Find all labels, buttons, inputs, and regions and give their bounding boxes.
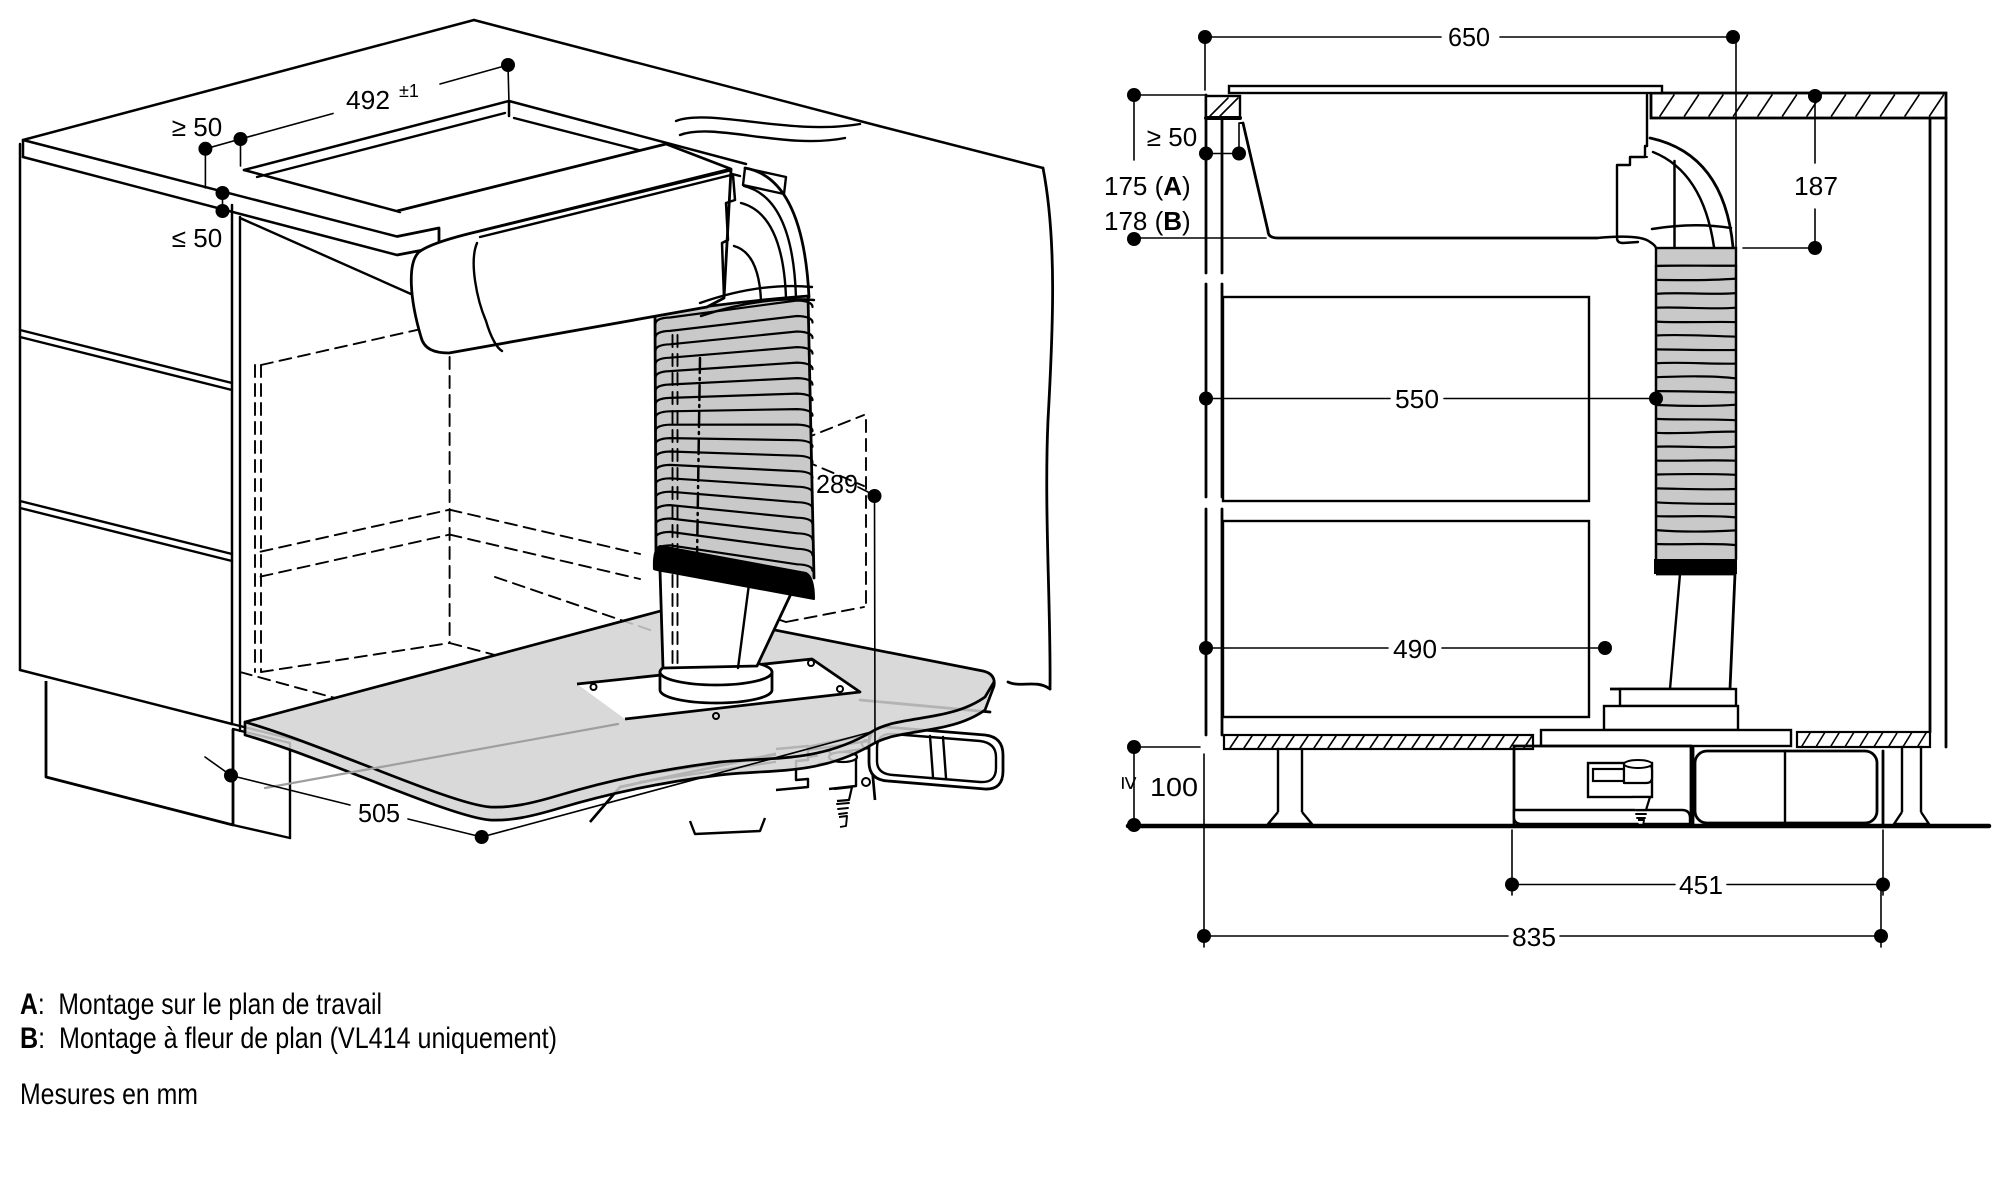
svg-text:550: 550 (1395, 386, 1439, 414)
svg-text:≤ 50: ≤ 50 (172, 223, 222, 253)
svg-text:≥ 50: ≥ 50 (1147, 122, 1197, 152)
svg-text:835: 835 (1512, 924, 1556, 952)
svg-text:187: 187 (1794, 173, 1838, 201)
svg-text:A: Montage sur le plan de tra: A: Montage sur le plan de travail (20, 988, 382, 1021)
svg-text:±1: ±1 (399, 81, 419, 101)
svg-text:Mesures en mm: Mesures en mm (20, 1078, 198, 1111)
svg-text:492: 492 (346, 87, 390, 115)
svg-text:B: Montage à fleur de plan (V: B: Montage à fleur de plan (VL414 unique… (20, 1022, 557, 1055)
svg-text:451: 451 (1679, 872, 1723, 900)
svg-text:289: 289 (816, 471, 858, 499)
svg-text:490: 490 (1393, 636, 1437, 664)
svg-text:175 (A): 175 (A) (1104, 171, 1191, 201)
svg-text:650: 650 (1448, 24, 1490, 52)
svg-text:≥: ≥ (1116, 776, 1143, 789)
svg-text:≥ 50: ≥ 50 (172, 112, 222, 142)
svg-text:505: 505 (358, 800, 400, 828)
svg-text:100: 100 (1150, 774, 1198, 802)
svg-text:178 (B): 178 (B) (1104, 206, 1191, 236)
